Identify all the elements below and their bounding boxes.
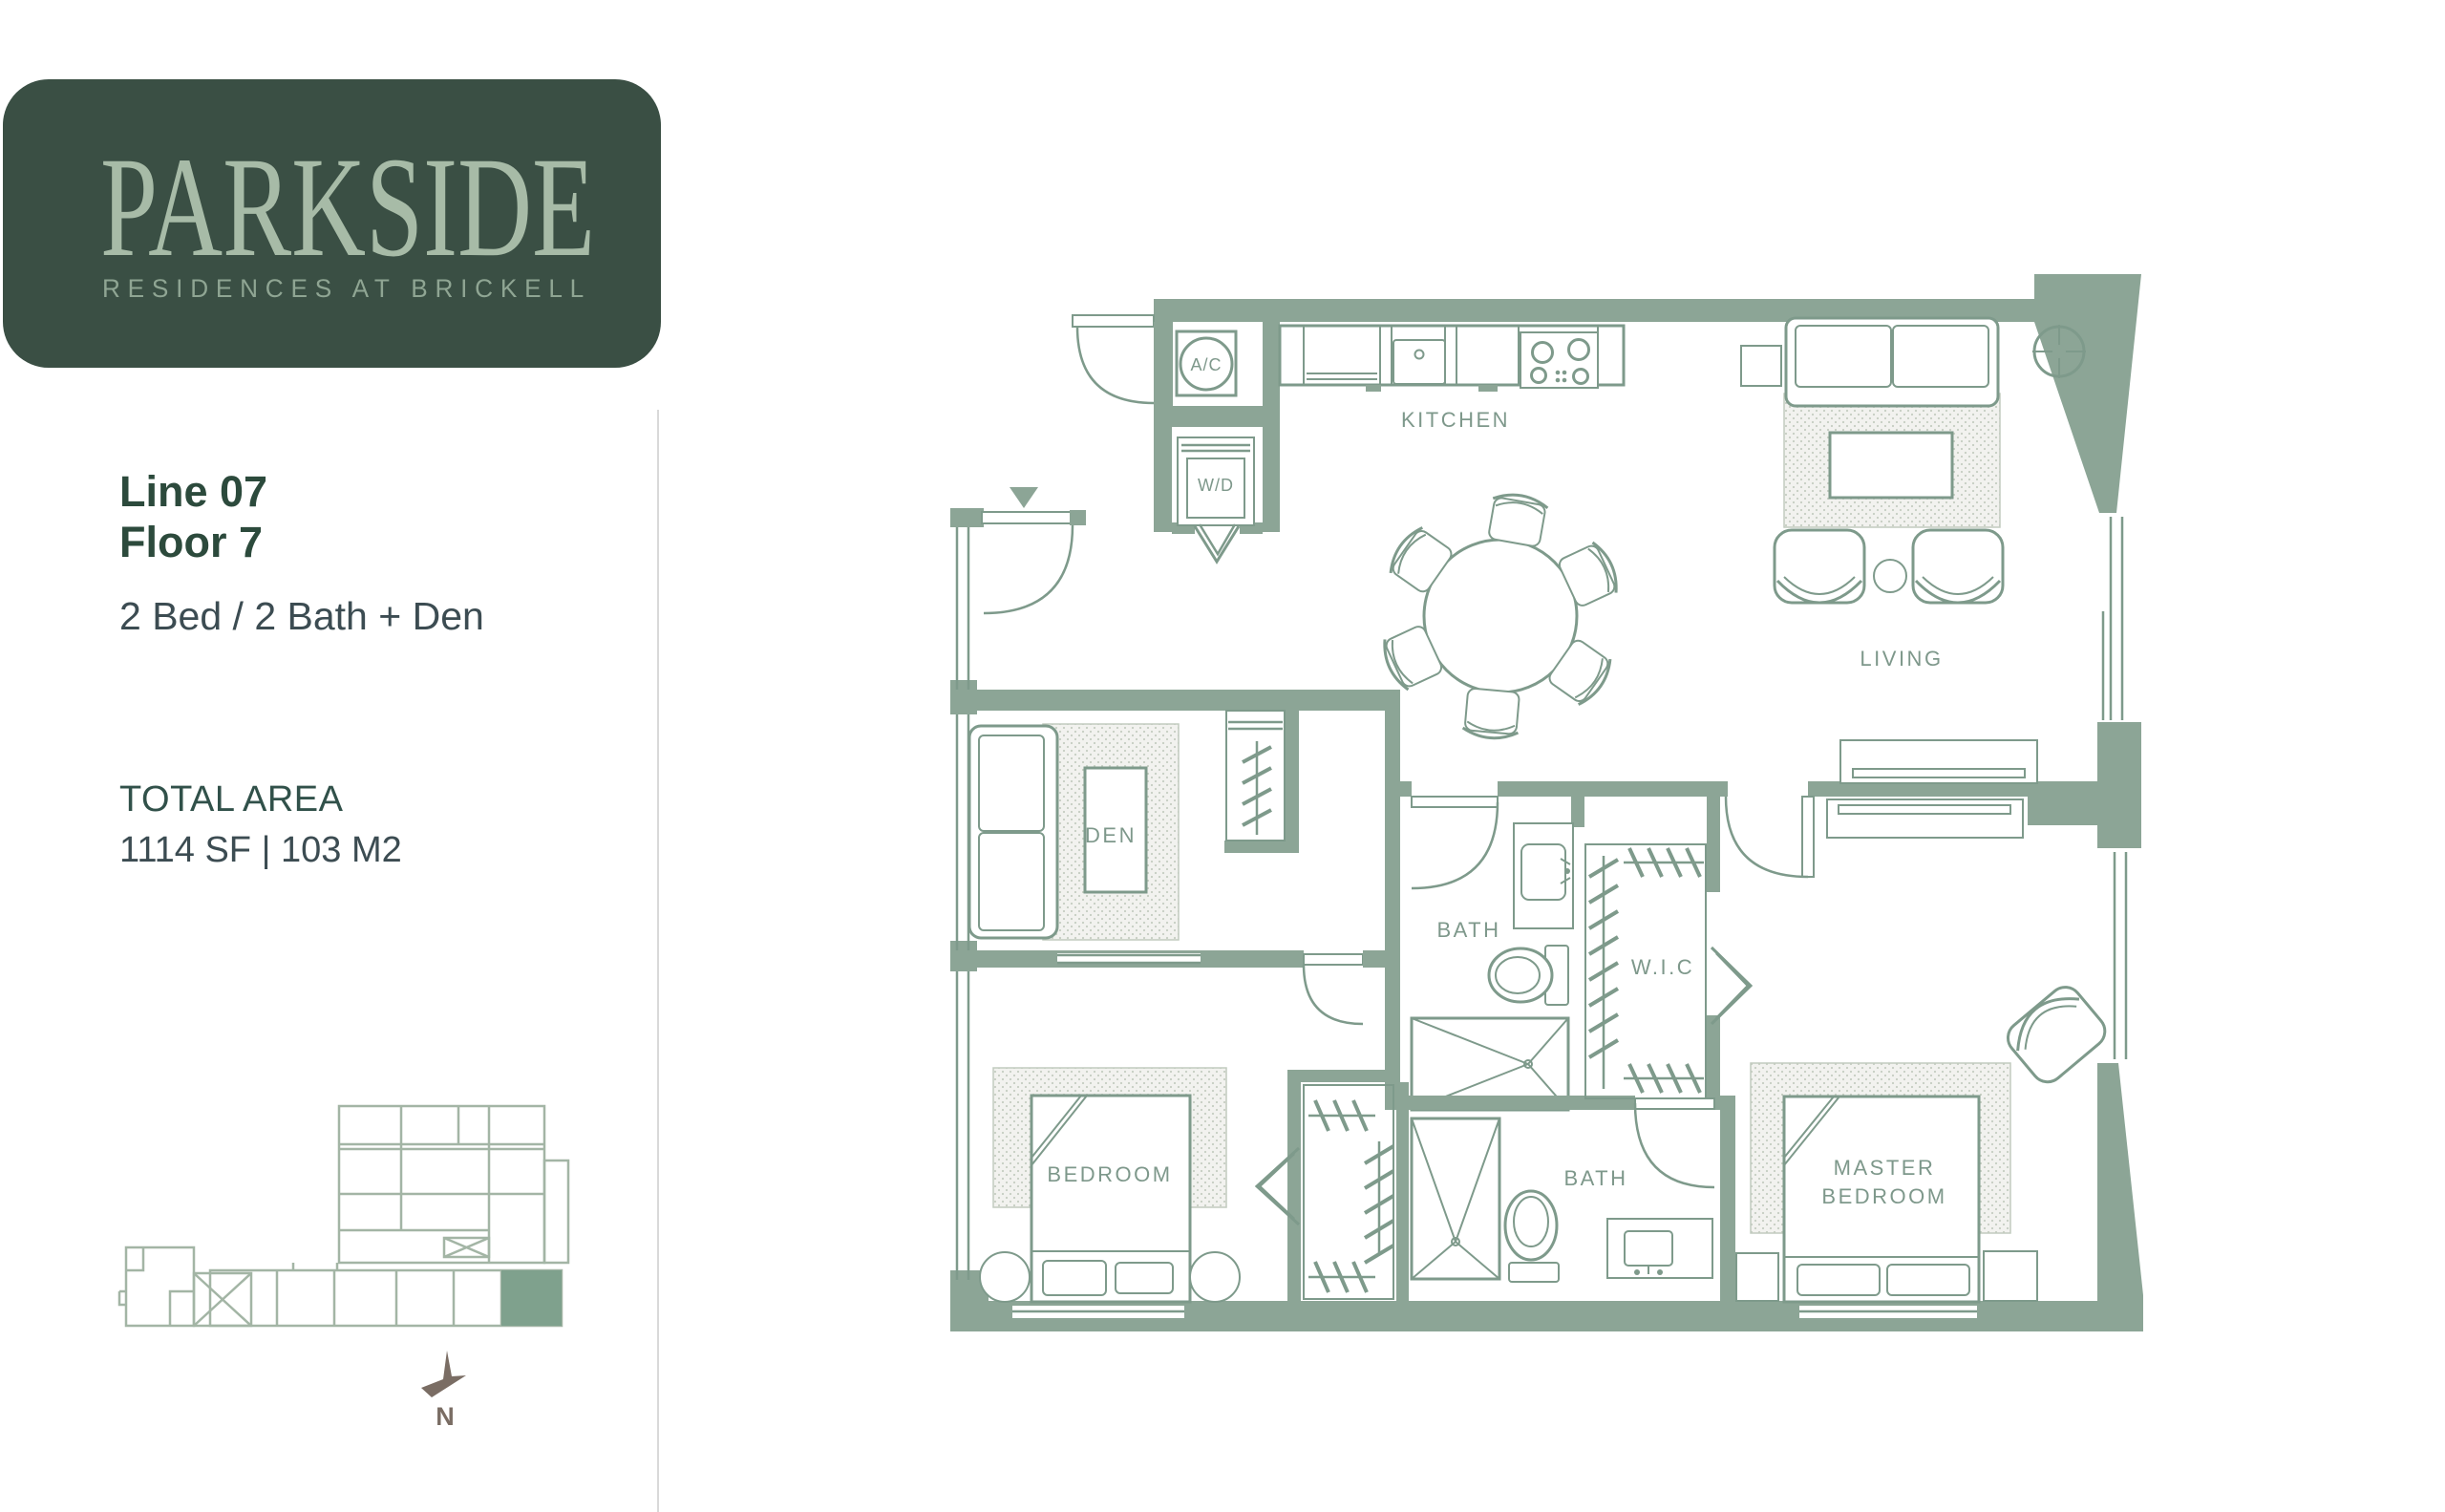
bedroom-door-leaf <box>1304 954 1363 965</box>
den: DEN <box>950 690 1400 1110</box>
kitchen: KITCHEN <box>1280 326 1624 432</box>
coffee-table <box>1830 433 1952 498</box>
living-label: LIVING <box>1860 647 1943 671</box>
living-armchair-right <box>1913 530 2003 603</box>
compass: N <box>421 1351 466 1431</box>
wic-label: W.I.C <box>1631 955 1694 979</box>
nightstand <box>1736 1253 1778 1301</box>
living-armchair-left <box>1775 530 1864 603</box>
wd-label: W/D <box>1198 476 1234 495</box>
toilet-upper <box>1489 946 1568 1005</box>
north-arrow-icon <box>421 1351 466 1397</box>
master-armchair <box>2002 981 2112 1089</box>
kitchen-sink <box>1393 340 1445 384</box>
master-label-line2: BEDROOM <box>1821 1184 1946 1208</box>
vanity-lower <box>1607 1219 1712 1278</box>
entry <box>982 487 1086 613</box>
bedroom2: BEDROOM <box>980 1068 1240 1302</box>
shower-lower <box>1412 1118 1499 1279</box>
wic-door <box>1711 948 1751 1024</box>
bath-door-leaf <box>1412 797 1498 807</box>
bedroom-door-arc <box>1304 965 1363 1024</box>
bath-lower-label: BATH <box>1563 1166 1627 1190</box>
dining <box>1378 491 1624 740</box>
vanity-upper <box>1514 823 1573 928</box>
ac-label: A/C <box>1190 355 1222 374</box>
bath-door-arc <box>1412 802 1498 888</box>
keyplan-highlighted-unit <box>501 1270 562 1326</box>
bath-upper-label: BATH <box>1436 918 1500 942</box>
bath-lower: BATH <box>1412 1098 1735 1301</box>
entry-door-arc <box>984 525 1073 613</box>
bath2-door-leaf <box>1635 1098 1714 1109</box>
keyplan <box>119 1106 568 1326</box>
entry-door-leaf <box>982 512 1073 523</box>
den-closet <box>1224 690 1299 853</box>
side-table <box>1741 346 1781 386</box>
wd-bifold-door <box>1195 526 1239 562</box>
round-side-table <box>1874 560 1906 592</box>
north-label: N <box>436 1402 455 1431</box>
utility-closets: A/C W/D <box>1073 315 1280 562</box>
entry-marker-icon <box>1010 487 1038 508</box>
ac-door-leaf <box>1073 315 1154 327</box>
mid-walls <box>1385 740 2098 888</box>
cooktop <box>1520 332 1598 388</box>
master-door-leaf <box>1802 797 1814 877</box>
floorplan-svg: A/C W/D KITCHEN <box>0 0 2445 1512</box>
bath2-door-arc <box>1635 1103 1714 1187</box>
nightstand <box>980 1252 1030 1302</box>
nightstand <box>1190 1252 1240 1302</box>
bath-upper: BATH <box>1412 823 1573 1110</box>
master-door-arc <box>1726 797 1808 877</box>
console-upper <box>1840 740 2037 783</box>
master-bedroom: MASTER BEDROOM <box>1736 981 2112 1302</box>
ac-door-arc <box>1077 327 1154 403</box>
kitchen-label: KITCHEN <box>1401 408 1510 432</box>
toilet-lower <box>1505 1191 1559 1282</box>
bedroom-label: BEDROOM <box>1047 1162 1172 1186</box>
console-lower <box>1827 799 2023 838</box>
living-room: LIVING <box>1741 318 2086 671</box>
den-label: DEN <box>1085 823 1137 847</box>
master-label-line1: MASTER <box>1834 1156 1936 1180</box>
nightstand <box>1984 1251 2037 1301</box>
